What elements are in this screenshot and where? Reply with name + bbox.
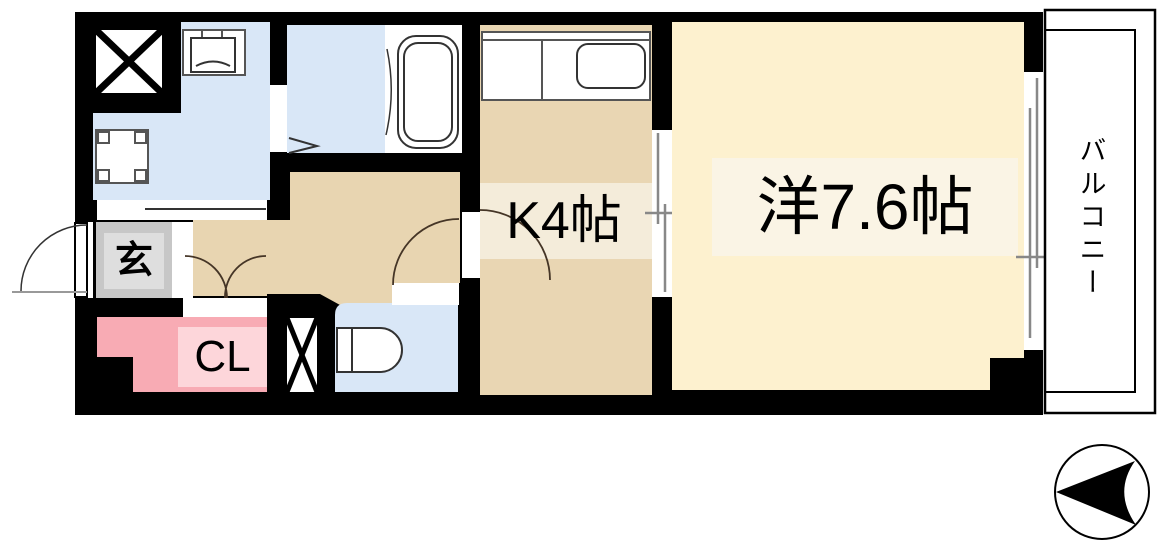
toilet-door-gap — [392, 283, 459, 305]
bathroom-area — [287, 25, 385, 153]
entrance-door — [12, 222, 93, 298]
north-arrow-icon — [1055, 445, 1149, 539]
entrance-label: 玄 — [100, 230, 168, 292]
entrance-step — [172, 222, 193, 298]
washing-machine-pan-icon — [96, 130, 148, 183]
toilet-icon — [337, 328, 402, 372]
floorplan-canvas: 玄 CL K4帖 洋7.6帖 バルコニー — [0, 0, 1162, 552]
floorplan-svg — [0, 0, 1162, 552]
closet-door-gap — [183, 298, 267, 317]
shaft-x-icon — [96, 30, 162, 93]
balcony-window-gap — [1024, 72, 1043, 350]
western-room-label: 洋7.6帖 — [712, 158, 1018, 256]
kitchen-sink-icon — [482, 32, 650, 100]
balcony-label: バルコニー — [1050, 88, 1130, 348]
pipe-space-x-icon — [287, 318, 317, 392]
closet-label: CL — [178, 327, 267, 387]
kitchen-label: K4帖 — [468, 182, 660, 260]
washbasin-icon — [183, 30, 245, 75]
bath-door-gap — [270, 85, 287, 152]
